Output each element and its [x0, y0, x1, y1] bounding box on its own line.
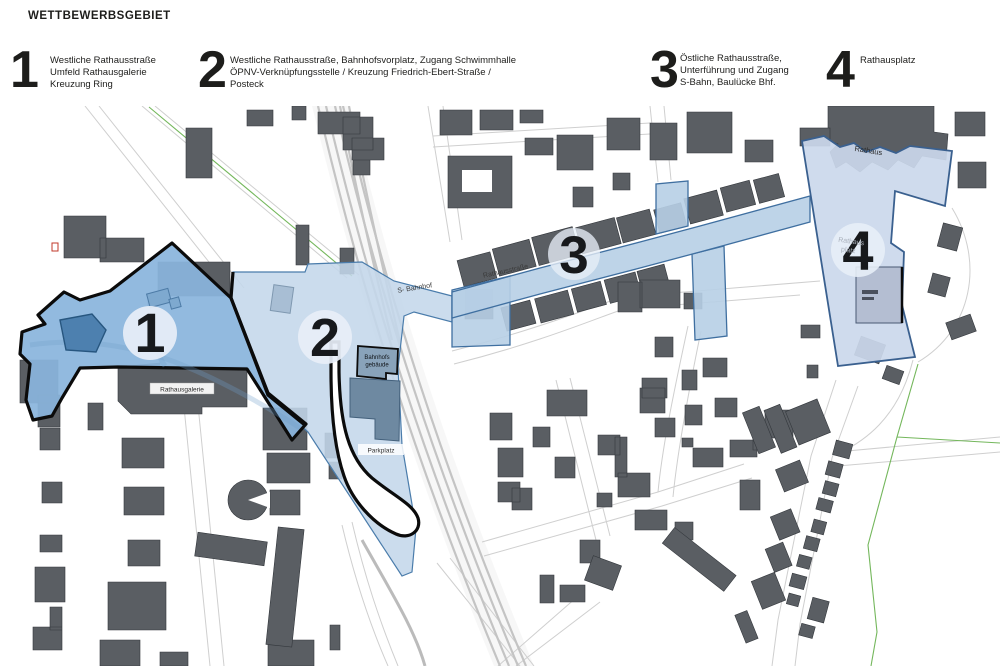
page-title: WETTBEWERBSGEBIET	[28, 10, 171, 22]
zone-marker-number-1: 1	[134, 301, 165, 364]
label-parkplatz: Parkplatz	[367, 448, 394, 455]
courtyard	[462, 170, 492, 192]
legend-number-1: 1	[10, 48, 39, 92]
label-bahnhofsgebaeude-1: Bahnhofs	[364, 355, 389, 361]
city-map: Rathausgalerie Bahnhofs gebäude Parkplat…	[0, 106, 1000, 666]
legend-number-4: 4	[826, 48, 855, 92]
label-bahnhofsgebaeude-2: gebäude	[365, 363, 389, 369]
map-symbol-icon	[52, 243, 58, 251]
legend-number-2: 2	[198, 48, 227, 92]
label-rathausgalerie: Rathausgalerie	[160, 387, 204, 394]
legend-text-4: Rathausplatz	[860, 55, 995, 67]
zone-marker-number-2: 2	[310, 308, 340, 368]
legend-number-3: 3	[650, 48, 679, 92]
legend-text-1: Westliche Rathausstraße Umfeld Rathausga…	[50, 55, 210, 91]
legend-text-2: Westliche Rathausstraße, Bahnhofsvorplat…	[230, 55, 630, 91]
zone-marker-number-3: 3	[559, 226, 588, 285]
